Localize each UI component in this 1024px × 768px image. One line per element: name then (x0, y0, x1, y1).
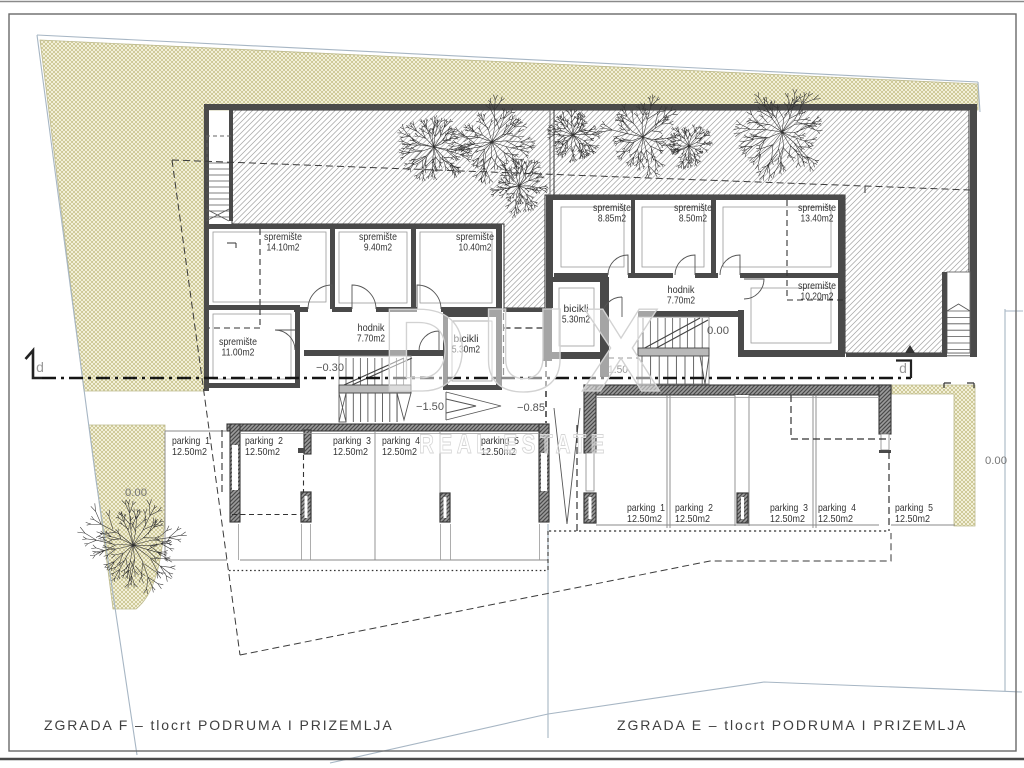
svg-text:0.00: 0.00 (985, 455, 1007, 467)
svg-text:12.50m2: 12.50m2 (172, 446, 207, 458)
svg-text:DUX: DUX (381, 284, 674, 417)
svg-text:12.50m2: 12.50m2 (895, 513, 930, 525)
svg-text:12.50m2: 12.50m2 (818, 513, 853, 525)
svg-text:0.00: 0.00 (125, 487, 147, 499)
svg-text:13.40m2: 13.40m2 (801, 213, 834, 225)
svg-text:10.20m2: 10.20m2 (801, 291, 834, 303)
svg-text:REAL ESTATE: REAL ESTATE (419, 429, 609, 459)
svg-text:ZGRADA E – tlocrt PODRUMA I: ZGRADA E – tlocrt PODRUMA I PRIZEMLJA (617, 717, 967, 733)
svg-text:11.00m2: 11.00m2 (222, 347, 255, 359)
svg-text:9.40m2: 9.40m2 (364, 242, 392, 254)
svg-text:ZGRADA F – tlocrt PODRUMA I: ZGRADA F – tlocrt PODRUMA I PRIZEMLJA (44, 717, 394, 733)
svg-text:d: d (899, 360, 907, 376)
svg-text:8.85m2: 8.85m2 (598, 213, 626, 225)
svg-text:10.40m2: 10.40m2 (459, 242, 492, 254)
svg-text:12.50m2: 12.50m2 (675, 513, 710, 525)
svg-text:14.10m2: 14.10m2 (267, 242, 300, 254)
svg-text:12.50m2: 12.50m2 (245, 446, 280, 458)
svg-text:8.50m2: 8.50m2 (679, 213, 707, 225)
svg-text:12.50m2: 12.50m2 (627, 513, 662, 525)
svg-text:12.50m2: 12.50m2 (770, 513, 805, 525)
svg-text:d: d (36, 359, 44, 375)
svg-text:12.50m2: 12.50m2 (382, 446, 417, 458)
svg-text:12.50m2: 12.50m2 (333, 446, 368, 458)
svg-text:0.00: 0.00 (707, 325, 729, 337)
svg-text:−0.30: −0.30 (316, 362, 344, 374)
